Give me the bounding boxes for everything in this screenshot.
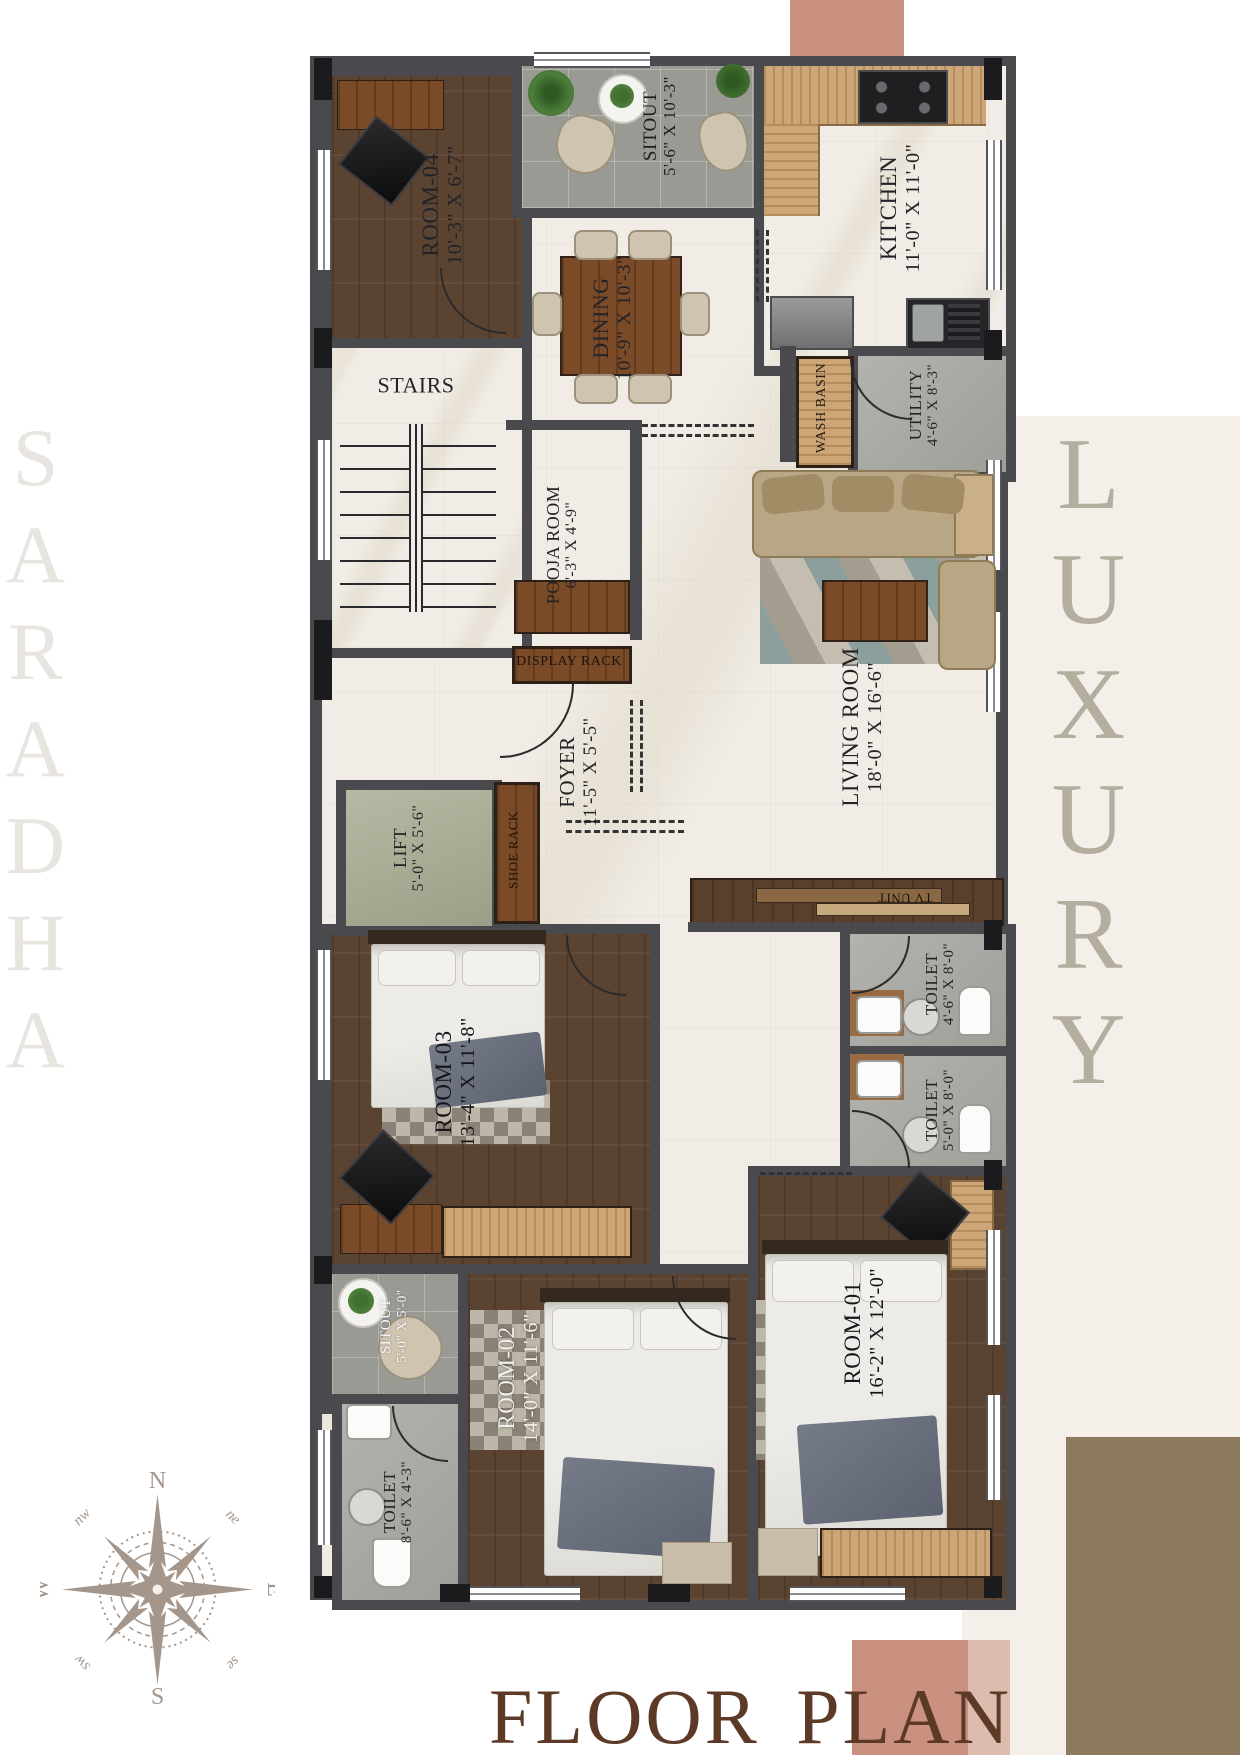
room-name: ROOM-01 [840,1268,866,1398]
pooja-right-wall [630,420,642,640]
wall-pier [314,58,332,100]
room-name: SITOUT [640,76,661,176]
room-dims: 14'-0" X 11'-6" [520,1313,543,1442]
left-watermark: SARADHA [0,412,82,1072]
page-title: FLOOR PLAN [268,1672,1233,1762]
top-accent-bar [790,0,904,57]
window [316,150,332,270]
wall-pier [314,328,332,368]
room04-label: ROOM-04 10'-3" X 6'-7" [418,145,466,265]
room-dims: 13'-4" X 11'-8" [457,1017,480,1146]
compass-n: N [149,1472,166,1494]
room02-label: ROOM-02 14'-0" X 11'-6" [494,1313,542,1442]
room-name: DINING [589,256,614,381]
shoe-rack-label: SHOE RACK [507,811,522,889]
room-name: ROOM-03 [431,1017,457,1146]
wall-pier [314,1576,332,1598]
display-rack-label: DISPLAY RACK [516,654,622,670]
room-name: TOILET [380,1461,399,1543]
window [316,950,332,1080]
toilet-top-wc [958,986,992,1036]
room-dims: 5'-6" X 10'-3" [661,76,680,176]
window [470,1586,580,1602]
room04-desk [337,80,444,130]
room-name: UTILITY [906,364,925,446]
room-dims: 5'-0" X 5'-0" [395,1289,410,1362]
compass-s: S [151,1684,164,1707]
sitout-table-plant [610,84,634,108]
sitout-plant [528,70,574,116]
kitchen-opening-dash-2 [766,230,769,302]
floor-plan-page: { "branding": { "project_watermark": "SA… [0,0,1240,1755]
hall-dash-2 [566,830,684,833]
sofa-cushion-2 [832,476,894,512]
toilet-top-sink [856,996,902,1034]
sitout-small-plant [348,1288,374,1314]
room-name: LIVING ROOM [838,647,864,806]
wall-pier [984,330,1002,360]
living-armchair [938,560,996,670]
toilet-mid-sink [856,1060,902,1098]
room-name: POOJA ROOM [543,486,563,605]
kitchen-label: KITCHEN 11'-0" X 11'-0" [876,144,924,273]
room-dims: 5'-0" X 8'-0" [941,1069,958,1151]
pooja-top-wall [506,420,642,430]
room03-pillow-2 [462,950,540,986]
kitchen-opening-dash [756,230,759,302]
compass-rose: N S E W ne nw se sw [40,1472,275,1707]
room-dims: 4'-6" X 8'-3" [925,364,942,446]
room01-label: ROOM-01 16'-2" X 12'-0" [840,1268,888,1398]
room02-mat [662,1542,732,1584]
room-dims: 16'-2" X 12'-0" [866,1268,889,1398]
room-name: WASH BASIN [814,363,830,453]
living-room-label: LIVING ROOM 18'-0" X 16'-6" [838,647,886,806]
room-dims: 5'-0" X 5'-6" [410,805,428,892]
room-name: TV UNIT [878,890,933,905]
room-dims: 10'-9" X 10'-3" [613,256,635,381]
room-name: ROOM-04 [418,145,444,265]
wash-basin-label: WASH BASIN [814,363,830,453]
toilet-left-wc [372,1538,412,1588]
sofa-cushion-1 [760,473,825,515]
room03-wardrobe [442,1206,632,1258]
room-dims: 11'-5" X 5'-5" [579,717,600,826]
sitout-top-label: SITOUT 5'-6" X 10'-3" [640,76,680,176]
window [986,1395,1002,1500]
wall-pier [984,1576,1002,1598]
compass-nw: nw [70,1505,94,1529]
room-dims: 10'-3" X 6'-7" [444,145,467,265]
compass-ne: ne [222,1507,244,1529]
compass-e: E [262,1582,275,1597]
wall-pier [314,620,332,700]
room03-pillow-1 [378,950,456,986]
room-dims: 6'-3" X 4'-9" [563,486,581,605]
room-name: STAIRS [377,374,454,399]
wall-pier [648,1584,690,1602]
kitchen-hob [948,304,980,340]
window [316,1430,332,1545]
toilet-mid-label: TOILET 5'-0" X 8'-0" [922,1069,958,1151]
room-name: KITCHEN [876,144,902,273]
toilet-mid-wc [958,1104,992,1154]
washbasin-left-wall [780,346,796,462]
window [534,52,650,68]
compass-sw: sw [71,1652,94,1675]
wall-pier [440,1584,470,1602]
stairs-rail [409,424,423,612]
room-dims: 4'-6" X 8'-0" [941,943,958,1025]
sofa-cushion-3 [900,473,965,515]
kitchen-fridge [770,296,854,350]
wall-pier [984,1160,1002,1190]
window [316,440,332,560]
utility-label: UTILITY 4'-6" X 8'-3" [906,364,942,446]
dining-living-dash [642,424,754,427]
room-name: SITOUT [378,1289,395,1362]
room01-mat [758,1528,818,1576]
room-name: TOILET [922,1069,941,1151]
room03-label: ROOM-03 13'-4" X 11'-8" [431,1017,479,1146]
room-name: SHOE RACK [507,811,522,889]
room-dims: 11'-0" X 11'-0" [902,144,925,273]
wall-pier [984,58,1002,100]
pooja-room-label: POOJA ROOM 6'-3" X 4'-9" [543,486,581,605]
room-name: LIFT [390,805,410,892]
toilet-left-sink [346,1404,392,1440]
room01-blanket [797,1415,944,1525]
wall-pier [314,1256,332,1284]
dining-chair-5 [532,292,562,336]
dining-label: DINING 10'-9" X 10'-3" [589,256,635,381]
room01-bed-headboard [762,1240,948,1254]
room-dims: 8'-6" X 4'-3" [399,1461,416,1543]
kitchen-sink [912,304,944,342]
tv-wall [688,922,1002,932]
room01-top-dash [760,1172,852,1175]
right-watermark: LUXURY [1030,418,1147,1058]
room-name: FOYER [556,717,580,826]
room-dims: 18'-0" X 16'-6" [864,647,887,806]
window [986,1230,1002,1345]
dining-living-dash-2 [642,434,754,437]
foyer-living-dash-2 [640,700,643,792]
room01-wardrobe [820,1528,992,1578]
dining-chair-6 [680,292,710,336]
toilet-left-label: TOILET 8'-6" X 4'-3" [380,1461,416,1543]
room-name: TOILET [922,943,941,1025]
wall-pier [984,920,1002,950]
compass-se: se [223,1653,243,1673]
foyer-label: FOYER 11'-5" X 5'-5" [556,717,600,826]
room02-pillow-1 [552,1308,634,1350]
window [790,1586,905,1602]
compass-w: W [40,1578,54,1601]
living-coffee-table [822,580,928,642]
room-name: DISPLAY RACK [516,654,622,670]
window [986,140,1002,290]
room03-bed-headboard [368,930,546,944]
kitchen-counter-left [764,124,820,216]
foyer-living-dash [630,700,633,792]
lift-label: LIFT 5'-0" X 5'-6" [390,805,428,892]
stairs-label: STAIRS [377,374,454,399]
toilet-top-label: TOILET 4'-6" X 8'-0" [922,943,958,1025]
tv-unit-label: TV UNIT [878,890,933,905]
kitchen-stove [858,70,948,124]
sitout-small-label: SITOUT 5'-0" X 5'-0" [378,1289,410,1362]
sitout-plant-2 [716,64,750,98]
room-name: ROOM-02 [494,1313,520,1442]
